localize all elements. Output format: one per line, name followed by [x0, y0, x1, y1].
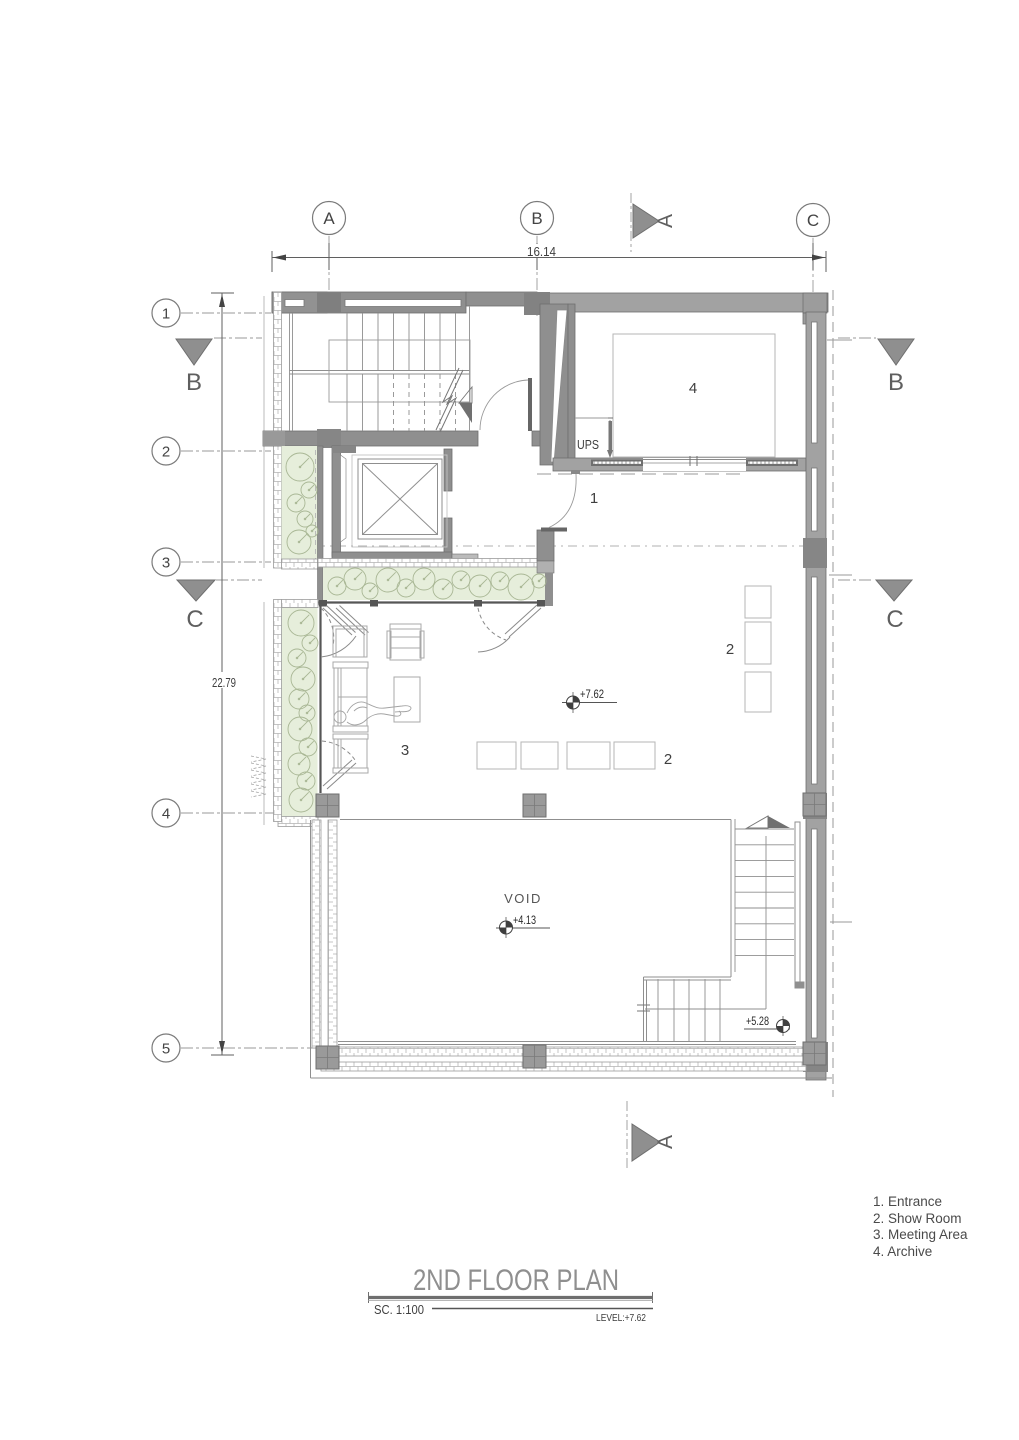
svg-text:B: B — [531, 209, 542, 228]
svg-text:2: 2 — [726, 641, 734, 658]
svg-text:A: A — [323, 209, 335, 228]
svg-text:1. Entrance: 1. Entrance — [873, 1194, 942, 1209]
svg-text:+4.13: +4.13 — [513, 913, 536, 927]
svg-text:C: C — [886, 606, 903, 633]
svg-text:+7.62: +7.62 — [580, 687, 604, 701]
svg-text:2: 2 — [162, 444, 170, 461]
svg-text:B: B — [186, 369, 202, 396]
svg-text:5: 5 — [162, 1041, 170, 1058]
svg-text:3: 3 — [401, 742, 409, 759]
svg-text:22.79: 22.79 — [212, 676, 236, 690]
svg-text:3. Meeting Area: 3. Meeting Area — [873, 1227, 968, 1242]
svg-text:C: C — [186, 606, 203, 633]
svg-text:A: A — [654, 1135, 677, 1149]
svg-text:1: 1 — [162, 306, 170, 323]
svg-text:16.14: 16.14 — [527, 245, 556, 259]
svg-text:C: C — [807, 211, 819, 230]
svg-text:2: 2 — [664, 751, 672, 768]
svg-text:B: B — [888, 369, 904, 396]
svg-text:2ND FLOOR PLAN: 2ND FLOOR PLAN — [413, 1264, 619, 1297]
svg-text:VOID: VOID — [504, 891, 542, 906]
svg-text:3: 3 — [162, 555, 170, 572]
svg-text:+5.28: +5.28 — [746, 1014, 769, 1028]
svg-text:4: 4 — [162, 806, 170, 823]
svg-text:UPS: UPS — [577, 437, 599, 452]
svg-text:A: A — [654, 214, 677, 228]
svg-text:LEVEL:+7.62: LEVEL:+7.62 — [596, 1312, 646, 1324]
svg-text:2. Show Room: 2. Show Room — [873, 1211, 962, 1226]
svg-text:SC. 1:100: SC. 1:100 — [374, 1303, 424, 1317]
svg-text:1: 1 — [590, 490, 598, 507]
svg-text:4. Archive: 4. Archive — [873, 1244, 932, 1259]
svg-text:4: 4 — [689, 380, 697, 397]
